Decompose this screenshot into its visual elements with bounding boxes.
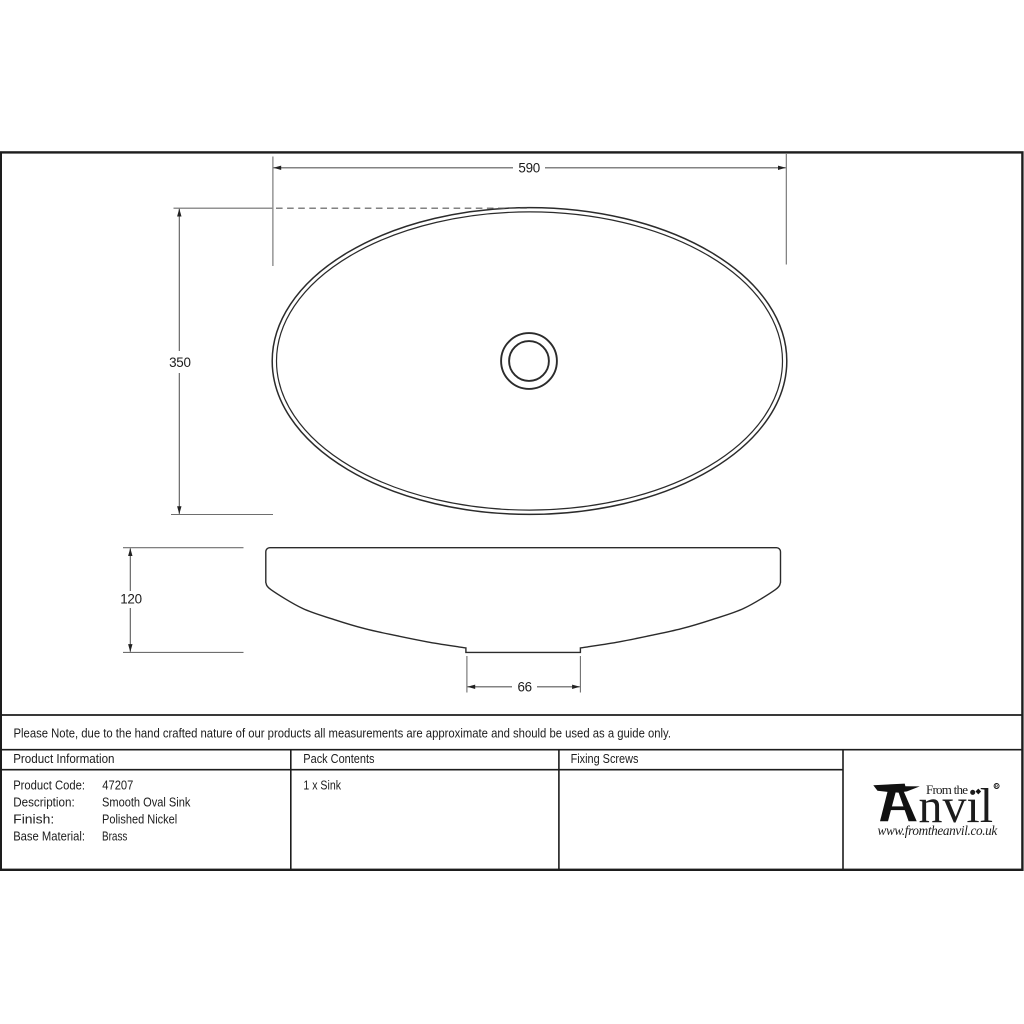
svg-text:1 x Sink: 1 x Sink xyxy=(303,777,341,792)
svg-text:Base Material:: Base Material: xyxy=(13,828,85,843)
svg-text:120: 120 xyxy=(120,592,142,607)
svg-text:Please Note, due to the hand c: Please Note, due to the hand crafted nat… xyxy=(14,726,672,741)
svg-text:www.fromtheanvil.co.uk: www.fromtheanvil.co.uk xyxy=(878,823,999,838)
svg-text:350: 350 xyxy=(169,355,191,370)
svg-text:Pack Contents: Pack Contents xyxy=(303,751,375,766)
svg-text:Description:: Description: xyxy=(13,794,74,809)
svg-text:66: 66 xyxy=(517,679,531,694)
svg-text:Polished Nickel: Polished Nickel xyxy=(102,811,177,826)
svg-text:590: 590 xyxy=(518,160,540,175)
svg-text:Fixing Screws: Fixing Screws xyxy=(571,751,639,766)
svg-text:Product Information: Product Information xyxy=(13,751,114,766)
svg-text:Smooth Oval Sink: Smooth Oval Sink xyxy=(102,794,191,809)
svg-text:Finish:: Finish: xyxy=(13,811,54,826)
svg-text:Brass: Brass xyxy=(102,828,128,843)
svg-text:47207: 47207 xyxy=(102,777,133,792)
svg-text:Product Code:: Product Code: xyxy=(13,777,85,792)
